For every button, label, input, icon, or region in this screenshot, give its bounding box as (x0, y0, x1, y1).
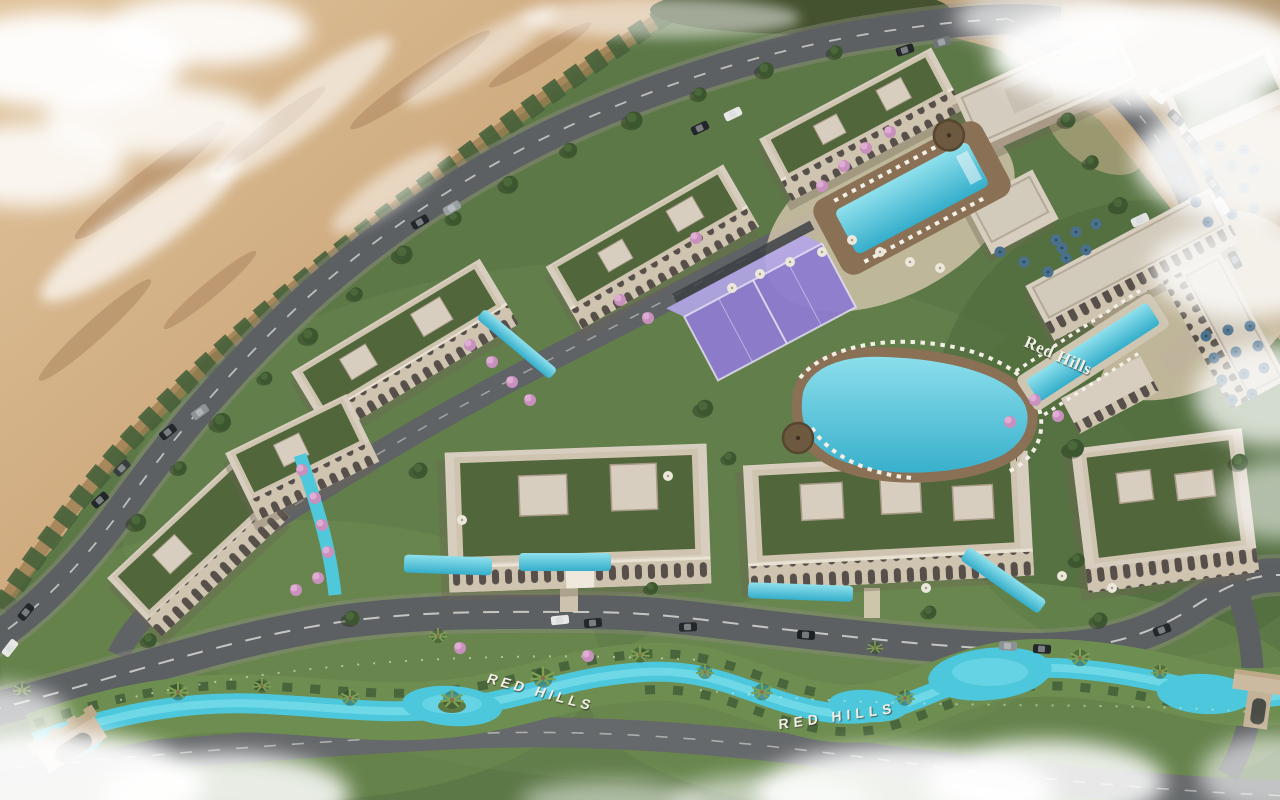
lagoon-pool (783, 342, 1041, 478)
aerial-render: Red Hills RED HILLS RED HILLS (0, 0, 1280, 800)
render-canvas (0, 0, 1280, 800)
building-center (437, 443, 712, 600)
